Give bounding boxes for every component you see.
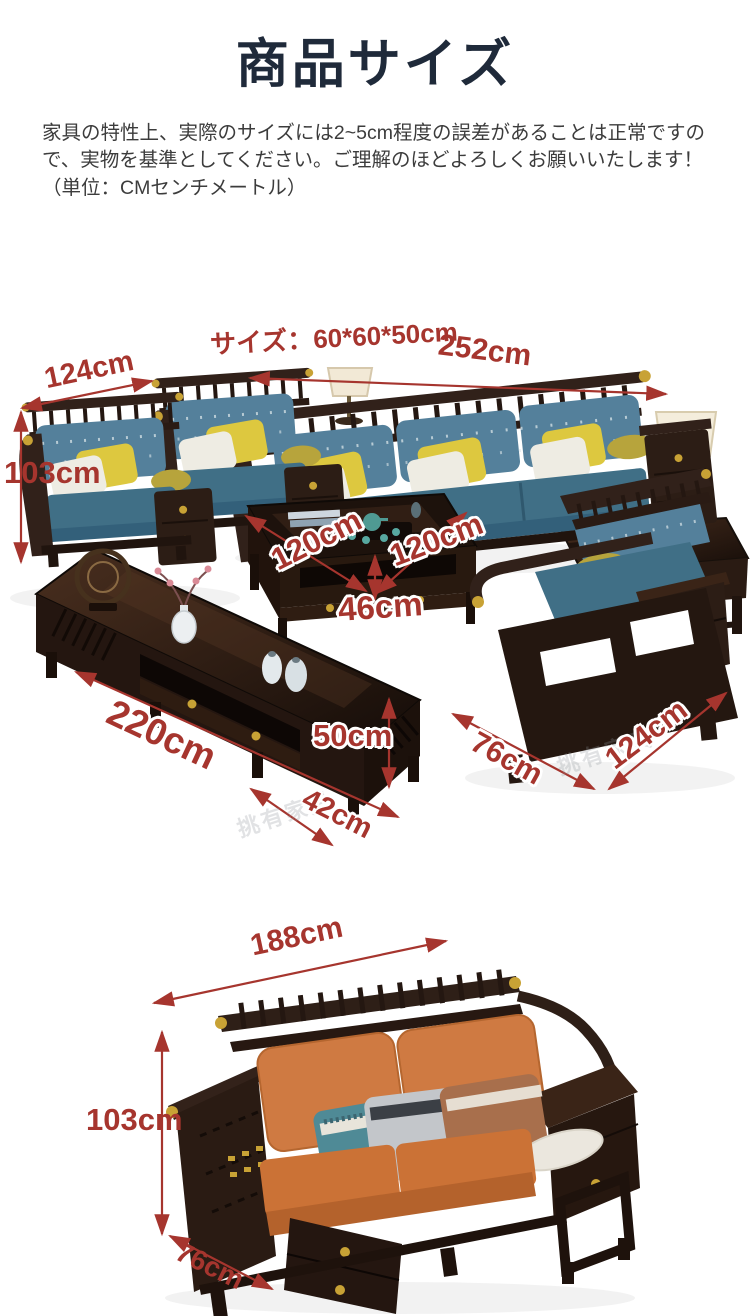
dimension-arrows	[0, 300, 750, 860]
page-title: 商品サイズ	[0, 22, 750, 98]
loveseat-scene: 188cm 103cm 76cm	[0, 900, 750, 1316]
dim-label-sofa-height: 103cm	[4, 457, 101, 488]
dim-label-table-height: 46cm	[337, 587, 424, 626]
living-set-scene: 挑有家具 挑有家具 サイズ：60*60*50cm 252cm 124cm 103…	[0, 300, 750, 860]
dim-label-tv-board-height: 50cm	[313, 720, 392, 751]
size-tolerance-notice: 家具の特性上、実際のサイズには2~5cm程度の誤差があることは正常ですので、実物…	[42, 120, 716, 202]
product-size-page: 商品サイズ 家具の特性上、実際のサイズには2~5cm程度の誤差があることは正常で…	[0, 0, 750, 1316]
dim-label-loveseat-height: 103cm	[86, 1104, 183, 1135]
